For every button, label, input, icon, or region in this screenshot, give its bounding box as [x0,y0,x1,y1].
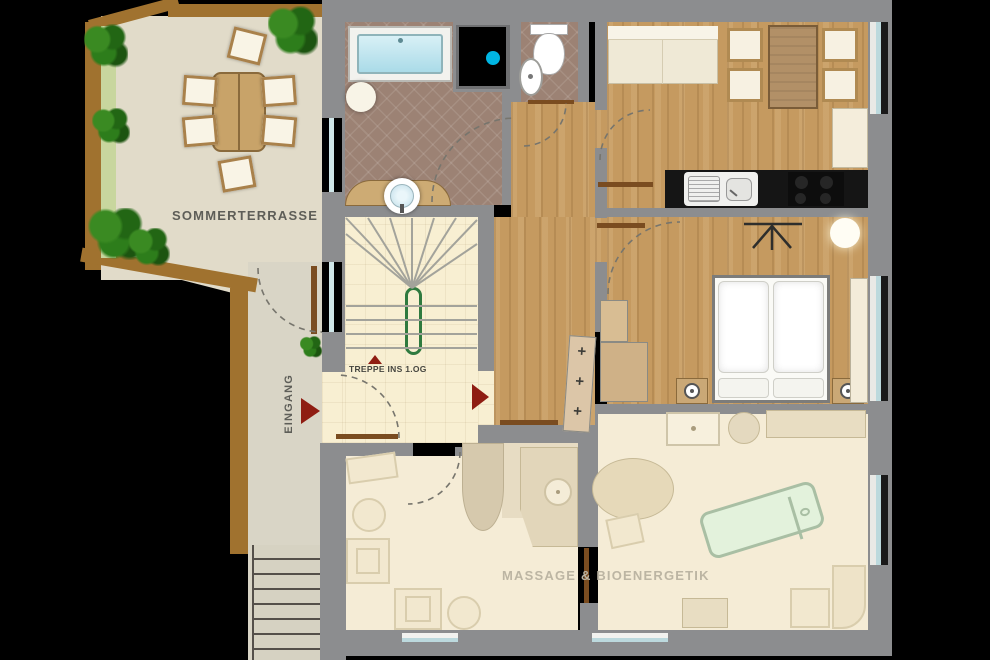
floor-plan: SOMMERTERRASSE EINGANG [0,0,990,660]
annotation-overlay [0,0,990,660]
slope-arrow-icon [744,224,802,250]
